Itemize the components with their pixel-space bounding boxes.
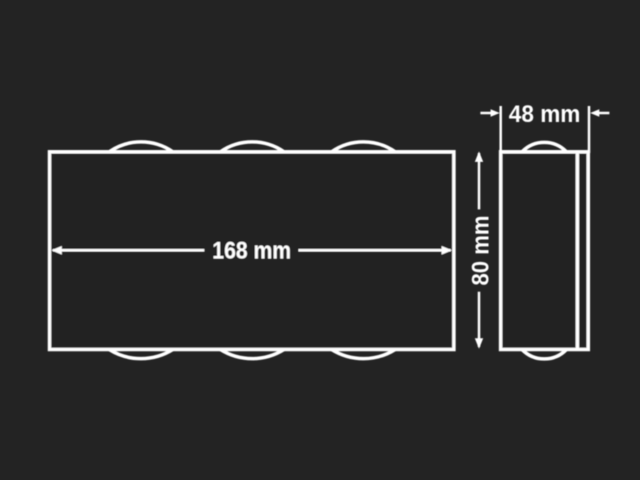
svg-text:48 mm: 48 mm xyxy=(509,101,581,128)
svg-text:80 mm: 80 mm xyxy=(467,216,494,286)
svg-text:168 mm: 168 mm xyxy=(212,237,291,264)
